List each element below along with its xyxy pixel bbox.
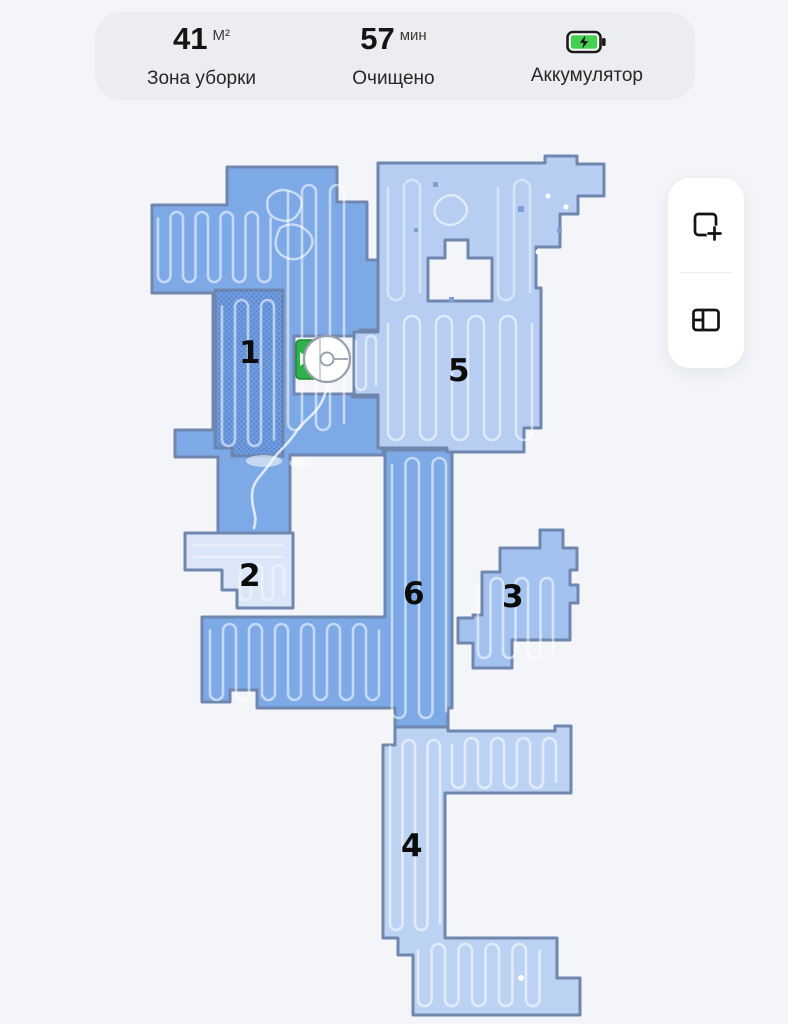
room-4-label: 4 [401, 828, 423, 864]
room-5-region[interactable] [354, 156, 604, 452]
room-divider-icon [687, 301, 725, 339]
room-4-region[interactable] [383, 726, 580, 1015]
room-3-label: 3 [502, 579, 524, 615]
trail-patch [246, 455, 282, 467]
add-zone-button[interactable] [668, 178, 744, 272]
map-edit-toolbar [668, 178, 744, 368]
room-2-label: 2 [239, 558, 261, 594]
room-6-label: 6 [403, 576, 425, 612]
split-rooms-button[interactable] [668, 273, 744, 367]
room-5-label: 5 [448, 353, 470, 389]
cleaning-map[interactable]: 1 2 3 4 5 6 [0, 0, 788, 1024]
room-1-label: 1 [239, 335, 261, 371]
trail-patch [289, 458, 311, 468]
add-zone-icon [687, 206, 725, 244]
robot-vacuum-icon[interactable] [304, 336, 350, 382]
